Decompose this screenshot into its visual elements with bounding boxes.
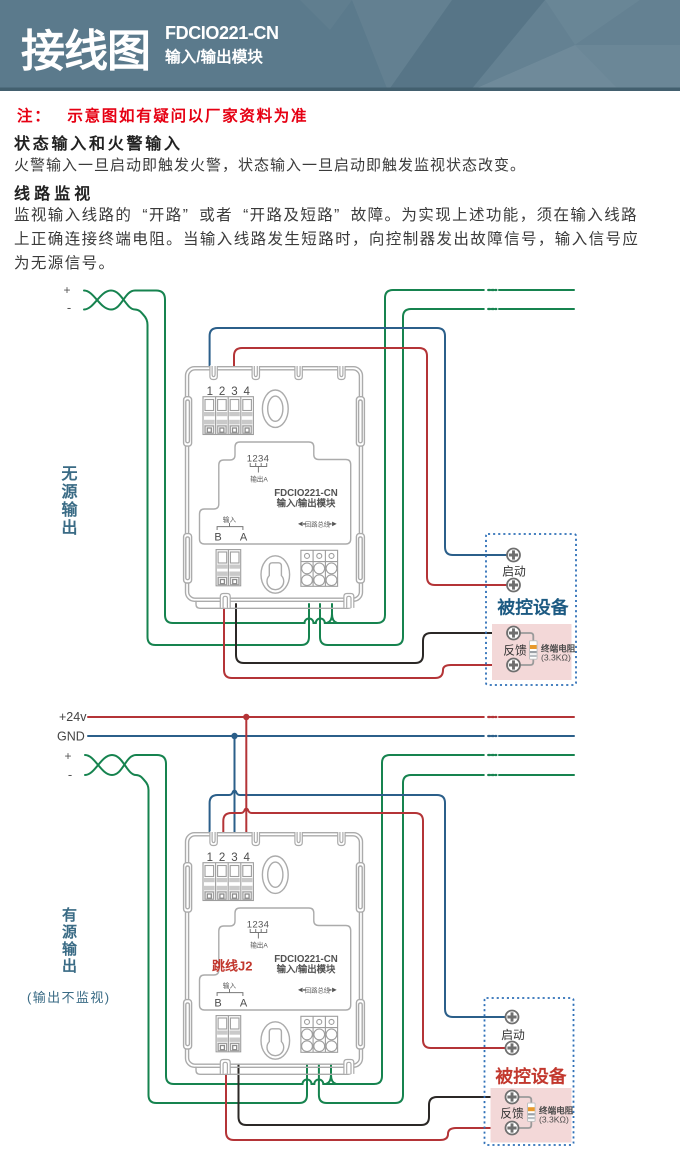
- svg-text:1234: 1234: [247, 454, 270, 465]
- svg-text:被控设备: 被控设备: [497, 597, 568, 618]
- svg-text:输入: 输入: [223, 515, 237, 524]
- svg-text:输出A: 输出A: [250, 475, 268, 484]
- svg-text:跳线J2: 跳线J2: [212, 959, 252, 974]
- svg-text:(3.3KΩ): (3.3KΩ): [539, 1115, 569, 1125]
- svg-text:启动: 启动: [501, 1028, 525, 1042]
- svg-text:回路总线: 回路总线: [305, 519, 331, 528]
- svg-text:反馈: 反馈: [500, 1107, 524, 1121]
- svg-text:-: -: [68, 767, 72, 782]
- svg-text:+: +: [63, 283, 70, 297]
- svg-text:A: A: [240, 531, 248, 543]
- svg-text:启动: 启动: [502, 565, 526, 579]
- svg-text:反馈: 反馈: [503, 644, 527, 658]
- svg-text:-: -: [67, 300, 71, 315]
- svg-text:+: +: [64, 749, 71, 763]
- svg-text:(3.3KΩ): (3.3KΩ): [541, 653, 571, 663]
- svg-text:+24v: +24v: [59, 710, 87, 724]
- svg-text:GND: GND: [57, 730, 85, 744]
- svg-text:B: B: [214, 531, 221, 543]
- svg-text:输入/输出模块: 输入/输出模块: [277, 497, 336, 508]
- svg-text:被控设备: 被控设备: [495, 1066, 566, 1087]
